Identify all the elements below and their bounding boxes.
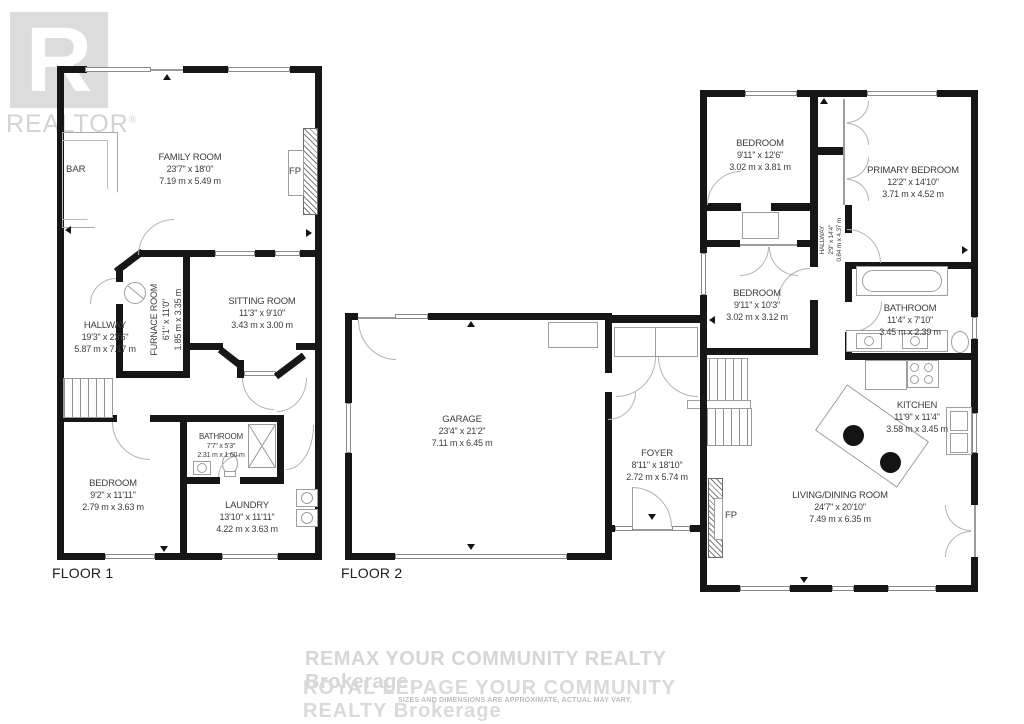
wall (151, 69, 183, 71)
room-label-hallway-f2: HALLWAY 2'9" x 14'4" 0.84 m x 4.37 m (818, 196, 846, 284)
room-dim-imperial: 23'4" x 21'2" (382, 426, 542, 438)
closet (655, 327, 656, 357)
door-arc (945, 505, 971, 531)
room-label-living-dining: LIVING/DINING ROOM 24'7" x 20'10" 7.49 m… (770, 490, 910, 526)
wall (936, 585, 978, 592)
room-label-bedroom-top: BEDROOM 9'11" x 12'6" 3.02 m x 3.81 m (690, 138, 830, 174)
door-arc (847, 229, 881, 263)
room-dim-imperial: 12'2" x 14'10" (833, 177, 993, 189)
window (105, 554, 155, 559)
arrow-marker (306, 229, 312, 237)
stove-burner (924, 375, 933, 384)
window (832, 586, 854, 591)
wall (428, 313, 612, 320)
room-dim-imperial: 11'4" x 7'10" (840, 315, 980, 327)
island-sink (880, 452, 901, 473)
door-arc (90, 278, 116, 304)
wall (150, 415, 284, 422)
wall (278, 553, 322, 560)
window (740, 586, 790, 591)
door-arc (769, 247, 798, 276)
room-dim-metric: 3.02 m x 3.81 m (690, 162, 830, 174)
room-dim-imperial: 9'2" x 11'11" (53, 490, 173, 502)
room-label-garage: GARAGE 23'4" x 21'2" 7.11 m x 6.45 m (382, 414, 542, 450)
arrow-marker (648, 514, 656, 520)
floor1-label: FLOOR 1 (52, 565, 113, 581)
wall (690, 525, 700, 532)
fireplace (714, 498, 723, 540)
room-dim-imperial: 9'11" x 10'3" (687, 300, 827, 312)
room-name: SITTING ROOM (192, 296, 332, 308)
wall (57, 66, 87, 73)
room-label-family-room: FAMILY ROOM 23'7" x 18'0" 7.19 m x 5.49 … (105, 152, 275, 188)
closet (742, 212, 779, 239)
wall (971, 453, 978, 505)
stove-burner (924, 363, 933, 372)
arrow-marker (160, 546, 168, 552)
wall (633, 529, 672, 531)
room-label-foyer: FOYER 8'11" x 18'10" 2.72 m x 5.74 m (597, 448, 717, 484)
room-dim-imperial: 9'11" x 12'6" (690, 150, 830, 162)
room-dim-metric: 7.11 m x 6.45 m (382, 438, 542, 450)
window (745, 91, 797, 96)
sink (197, 463, 207, 473)
arrow-marker (467, 321, 475, 327)
fireplace-label: FP (289, 166, 301, 177)
room-label-bedroom-mid: BEDROOM 9'11" x 10'3" 3.02 m x 3.12 m (687, 288, 827, 324)
window (222, 554, 278, 559)
wall (854, 585, 888, 592)
wall (790, 585, 832, 592)
floor2-label: FLOOR 2 (341, 565, 402, 581)
room-name: FOYER (597, 448, 717, 460)
wall (345, 453, 352, 560)
wall (845, 269, 852, 302)
room-dim-metric: 1.85 m x 3.35 m (172, 289, 184, 351)
room-dim-imperial: 11'9" x 11'4" (847, 412, 987, 424)
room-name: BATHROOM (840, 303, 980, 315)
room-name: BEDROOM (687, 288, 827, 300)
door-arc (740, 247, 769, 276)
room-name: BEDROOM (53, 478, 173, 490)
fireplace-label: FP (725, 510, 737, 521)
room-name: PRIMARY BEDROOM (833, 165, 993, 177)
door-arc (286, 425, 314, 470)
door-arc (277, 378, 307, 412)
room-label-bathroom-f1: BATHROOM 7'7" x 5'3" 2.31 m x 1.60 m (185, 432, 257, 461)
wall (296, 343, 315, 350)
floor-plan-canvas: R REALTOR® REMAX YOUR COMMUNITY REALTY B… (0, 0, 1024, 724)
wall (700, 90, 745, 97)
door-arc (358, 320, 396, 360)
wall (700, 585, 740, 592)
watermark-disclaimer: SIZES AND DIMENSIONS ARE APPROXIMATE, AC… (345, 697, 685, 704)
room-dim-metric: 3.43 m x 3.00 m (192, 320, 332, 332)
room-name: KITCHEN (847, 400, 987, 412)
stairs (63, 378, 113, 418)
door-arc (138, 219, 174, 255)
room-label-furnace-room: FURNACE ROOM 6'1" x 11'0" 1.85 m x 3.35 … (146, 266, 186, 374)
room-dim-metric: 7.49 m x 6.35 m (770, 514, 910, 526)
stove-burner (910, 363, 919, 372)
bar-label: BAR (66, 164, 86, 175)
room-label-primary-bedroom: PRIMARY BEDROOM 12'2" x 14'10" 3.71 m x … (833, 165, 993, 201)
door-arc (847, 101, 869, 123)
room-dim-imperial: 7'7" x 5'3" (185, 442, 257, 451)
wall (187, 477, 220, 484)
wall (700, 97, 707, 253)
wall (345, 553, 395, 560)
room-dim-metric: 7.19 m x 5.49 m (105, 176, 275, 188)
door-arc (847, 123, 869, 145)
stove-burner (910, 375, 919, 384)
wall (567, 553, 612, 560)
arrow-marker (65, 226, 71, 234)
wall (190, 250, 215, 257)
room-dim-imperial: 6'1" x 11'0" (160, 299, 172, 340)
arrow-marker (962, 246, 968, 254)
door-arc (616, 357, 656, 397)
wall (974, 505, 976, 557)
room-dim-metric: 4.22 m x 3.63 m (187, 524, 307, 536)
window (672, 526, 690, 531)
garage-door (395, 554, 567, 559)
room-dim-metric: 2.72 m x 5.74 m (597, 472, 717, 484)
wall (971, 97, 978, 317)
room-label-bedroom-f1: BEDROOM 9'2" x 11'11" 2.79 m x 3.63 m (53, 478, 173, 514)
room-dim-metric: 2.79 m x 3.63 m (53, 502, 173, 514)
door-arc (658, 357, 698, 397)
wall (274, 353, 306, 380)
room-name: BEDROOM (690, 138, 830, 150)
room-dim-metric: 3.02 m x 3.12 m (687, 312, 827, 324)
room-label-laundry: LAUNDRY 13'10" x 11'11" 4.22 m x 3.63 m (187, 500, 307, 536)
wall (358, 317, 395, 319)
wall (797, 90, 867, 97)
wall (740, 244, 797, 246)
room-label-sitting-room: SITTING ROOM 11'3" x 9'10" 3.43 m x 3.00… (192, 296, 332, 332)
window (215, 251, 255, 256)
door-arc (632, 487, 672, 527)
room-label-bathroom-f2: BATHROOM 11'4" x 7'10" 3.45 m x 2.39 m (840, 303, 980, 339)
wall (937, 90, 978, 97)
window (867, 91, 937, 96)
wall (707, 240, 740, 247)
room-name: HALLWAY (819, 226, 828, 254)
arrow-marker (163, 74, 171, 80)
window (275, 251, 300, 256)
wall (57, 553, 105, 560)
room-name: BATHROOM (185, 432, 257, 442)
room-dim-metric: 3.58 m x 3.45 m (847, 424, 987, 436)
wall (797, 240, 818, 247)
arrow-marker (800, 577, 808, 583)
door-arc (112, 422, 150, 460)
wall (771, 203, 818, 211)
window (395, 314, 428, 319)
kitchen-counter (865, 360, 907, 390)
registered-mark: ® (129, 115, 137, 126)
arrow-marker (820, 98, 828, 104)
window (228, 67, 290, 72)
wall (845, 353, 978, 360)
wall (277, 422, 284, 484)
room-label-kitchen: KITCHEN 11'9" x 11'4" 3.58 m x 3.45 m (847, 400, 987, 436)
room-dim-metric: 0.84 m x 4.37 m (836, 218, 845, 262)
room-dim-metric: 3.71 m x 4.52 m (833, 189, 993, 201)
fireplace (303, 128, 318, 215)
window (346, 403, 351, 453)
arrow-marker (467, 544, 475, 550)
door-arc (632, 487, 633, 527)
door-arc (242, 378, 274, 410)
kitchen-sink (950, 433, 968, 453)
window (85, 67, 151, 72)
stairs (706, 408, 752, 446)
door-arc (945, 531, 971, 557)
room-dim-imperial: 23'7" x 18'0" (105, 164, 275, 176)
wall (237, 360, 244, 378)
room-dim-imperial: 13'10" x 11'11" (187, 512, 307, 524)
window (244, 371, 276, 376)
wall (605, 320, 612, 373)
wall (190, 343, 223, 350)
room-name: FURNACE ROOM (148, 284, 160, 356)
wall (607, 525, 615, 532)
window (615, 526, 633, 531)
wall (300, 250, 315, 257)
room-name: LIVING/DINING ROOM (790, 490, 890, 502)
room-dim-metric: 2.31 m x 1.60 m (185, 451, 257, 460)
bathtub (862, 270, 942, 292)
stairs (700, 358, 748, 401)
window (888, 586, 936, 591)
wall (700, 348, 818, 355)
room-name: LAUNDRY (187, 500, 307, 512)
room-dim-metric: 3.45 m x 2.39 m (840, 327, 980, 339)
wall (155, 553, 222, 560)
room-dim-imperial: 11'3" x 9'10" (192, 308, 332, 320)
closet (614, 327, 698, 357)
room-name: FAMILY ROOM (105, 152, 275, 164)
room-dim-imperial: 24'7" x 20'10" (770, 502, 910, 514)
room-dim-imperial: 8'11" x 18'10" (597, 460, 717, 472)
room-name: GARAGE (382, 414, 542, 426)
wall (255, 250, 275, 257)
wall (345, 313, 352, 403)
storage-nook (548, 322, 598, 348)
wall (345, 313, 358, 320)
door-arc (707, 171, 741, 205)
wall (183, 66, 228, 73)
